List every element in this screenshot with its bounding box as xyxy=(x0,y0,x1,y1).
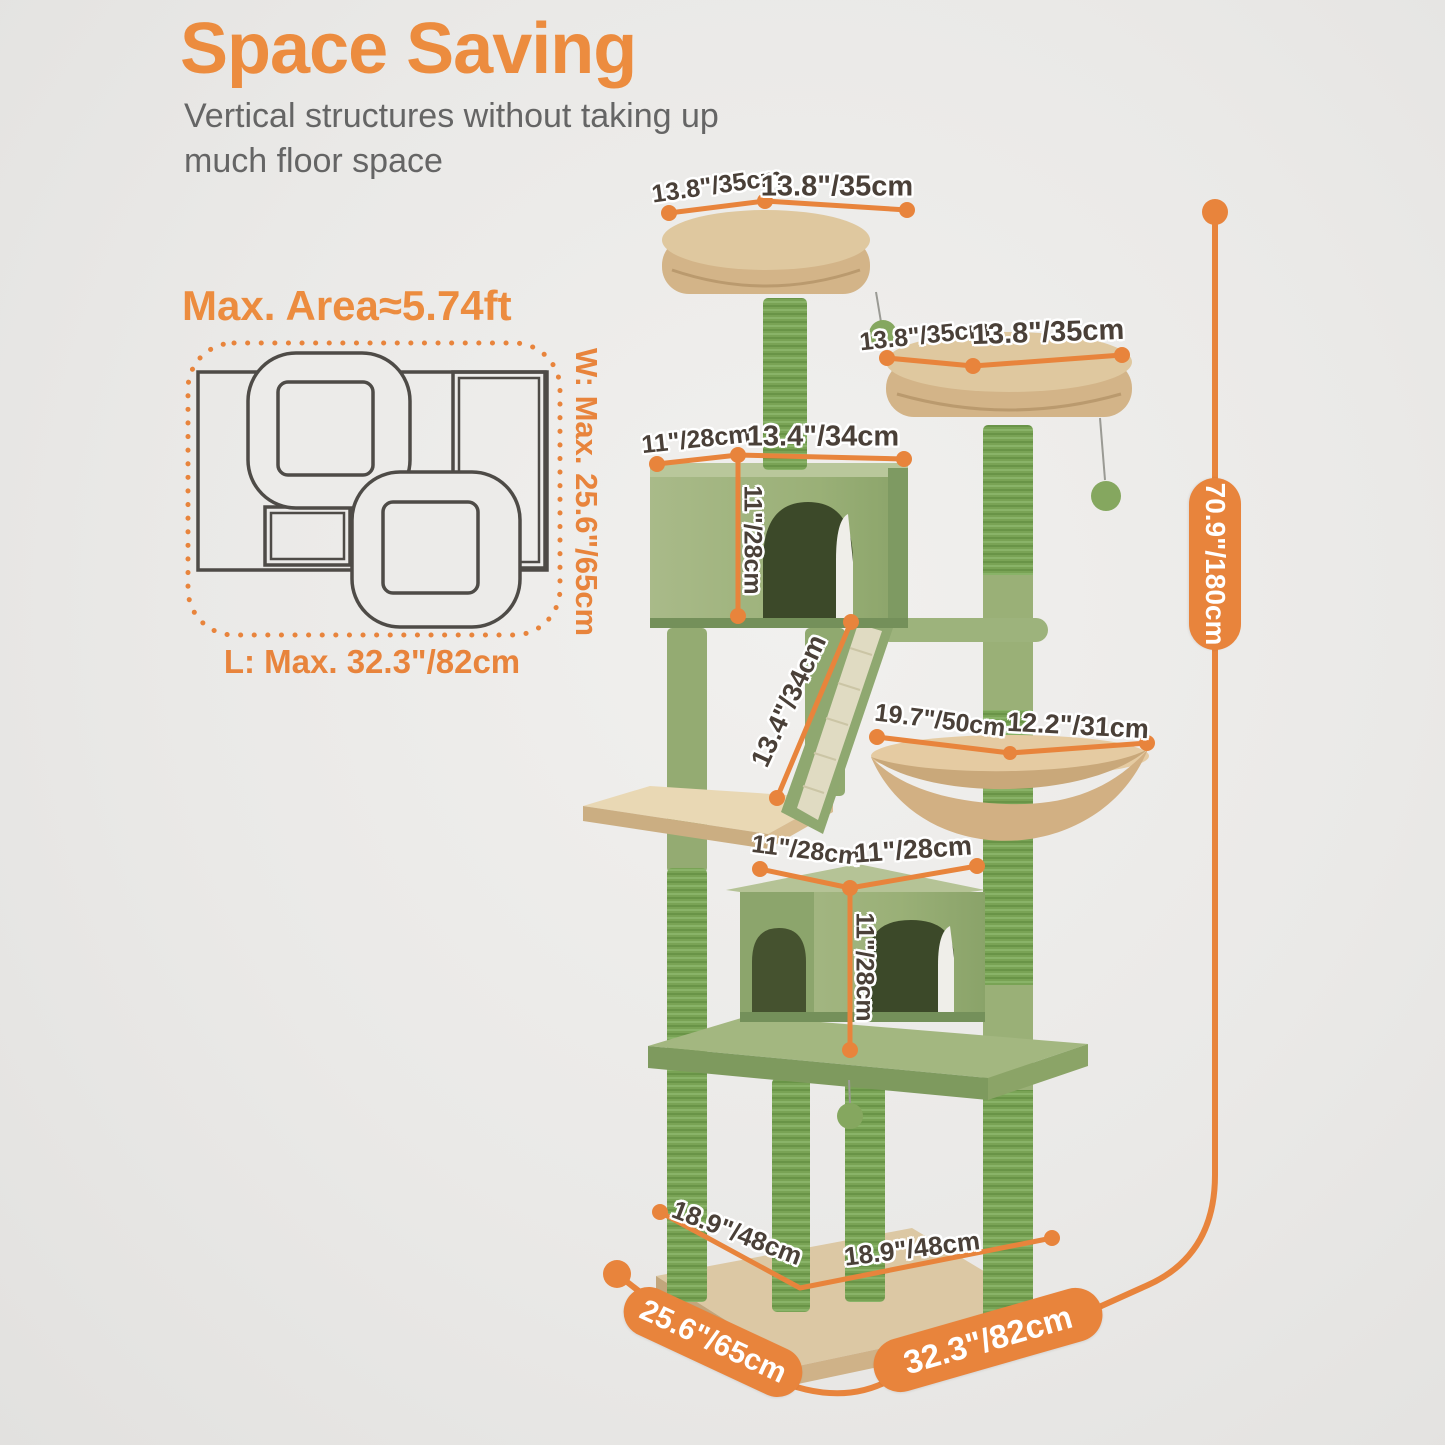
floorplan-length-label: L: Max. 32.3"/82cm xyxy=(224,643,520,681)
floorplan-width-label: W: Max. 25.6"/65cm xyxy=(568,348,604,636)
dim-second-platform-right: 13.8"/35cm xyxy=(971,314,1124,352)
dim-lower-condo-height: 11"/28cm xyxy=(850,912,879,1021)
page-subtitle: Vertical structures without taking up mu… xyxy=(184,94,719,184)
dim-upper-condo-width: 13.4"/34cm xyxy=(747,421,899,454)
dim-top-platform-right: 13.8"/35cm xyxy=(761,171,913,204)
overall-height-pill: 70.9"/180cm xyxy=(1189,478,1241,650)
cat-tree-illustration xyxy=(583,210,1149,1384)
max-area-heading: Max. Area≈5.74ft xyxy=(182,282,512,330)
infographic-canvas: Space Saving Vertical structures without… xyxy=(0,0,1445,1445)
overall-height-value: 70.9"/180cm xyxy=(1199,483,1231,646)
dim-upper-condo-height: 11"/28cm xyxy=(738,485,767,594)
page-title: Space Saving xyxy=(180,8,636,90)
floor-plan-diagram xyxy=(188,343,560,635)
